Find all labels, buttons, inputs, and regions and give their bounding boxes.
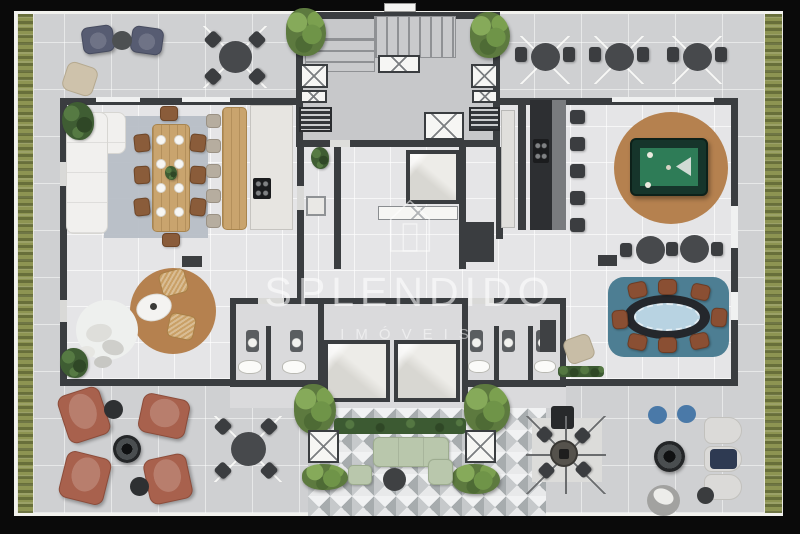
centerpiece-plant [165, 166, 177, 180]
kitchen-island [250, 105, 293, 230]
wall-corridor-right [459, 147, 466, 269]
floor-plan-render: SPLENDIDO IMÓVEIS [0, 0, 800, 534]
planter-bush-core-right [470, 12, 510, 58]
wall-divider-left [297, 147, 304, 305]
toilet-4 [534, 360, 556, 373]
plant-stones [60, 348, 88, 378]
shaft-left-1 [300, 64, 328, 88]
wall-inner-bottom-right [564, 379, 738, 386]
fire-pit [654, 441, 685, 472]
terrace-chair [711, 242, 723, 256]
lounge-chair-terracotta [142, 452, 195, 506]
console-table [182, 256, 202, 267]
bath-door-2 [468, 298, 494, 304]
round-table [231, 432, 266, 466]
plate [156, 159, 166, 169]
plate [156, 183, 166, 193]
window-right-2 [731, 292, 738, 320]
window-right-1 [731, 206, 738, 248]
wall-core-bottom-a [296, 140, 332, 147]
wall-kitchen [518, 104, 526, 230]
vent-grille-left [299, 107, 332, 132]
hedge-patio [334, 418, 466, 434]
stall-divider-4 [494, 326, 499, 382]
pool-ball [666, 165, 671, 170]
round-table [219, 41, 252, 73]
terrace-chair [637, 47, 649, 62]
fire-pit [113, 435, 141, 463]
bar-stool [206, 139, 221, 153]
plate [156, 135, 166, 145]
poker-chair [658, 337, 677, 353]
poker-chair [611, 309, 629, 329]
shower-room-2 [394, 340, 460, 402]
window-tr-1 [612, 97, 714, 102]
poker-table-felt [634, 303, 700, 331]
bar-counter-dark [530, 100, 552, 230]
bath-door-1 [258, 298, 284, 304]
pouf-blue [648, 406, 667, 424]
terrace-chair [515, 47, 527, 62]
plate [174, 207, 184, 217]
bar-counter-wood [222, 107, 247, 230]
terrace-chair [666, 242, 678, 256]
washbasin-2 [290, 330, 303, 352]
side-table-round [130, 477, 149, 496]
bar-stool-dark [570, 191, 585, 205]
patio-bush-left [302, 464, 348, 490]
dining-chair [189, 133, 207, 153]
washbasin-3 [470, 330, 483, 352]
modular-sofa-seat [704, 417, 742, 444]
elevator-shaft-center [378, 55, 420, 73]
side-table-round [697, 487, 714, 504]
bar-counter-top [552, 100, 566, 230]
planter-bush-patio-right [464, 384, 510, 434]
dining-chair [133, 133, 151, 153]
toilet-2 [282, 360, 306, 374]
side-table-round [104, 400, 123, 419]
stall-divider-3 [462, 298, 468, 402]
terrace-chair [589, 47, 601, 62]
bar-stool-dark [570, 164, 585, 178]
cooktop-bar [533, 139, 549, 163]
terrace-chair [620, 243, 632, 257]
window-tl-2 [182, 97, 230, 102]
terrace-chair [667, 47, 679, 62]
poker-chair [710, 307, 728, 327]
shaft-right-1 [471, 64, 498, 88]
shower-room-1 [324, 340, 390, 402]
plate [174, 135, 184, 145]
bar-stool-dark [570, 218, 585, 232]
dining-chair [189, 197, 207, 217]
terrace-chair [563, 47, 575, 62]
round-table [680, 235, 709, 263]
stairs-upper [374, 16, 456, 58]
wicker-chair [166, 311, 198, 341]
elevator-shaft-lower [424, 112, 464, 140]
coffee-table-knob [150, 303, 157, 310]
sofa-sage-ottoman [428, 459, 453, 485]
pouf-sage-cube [348, 465, 372, 485]
bath-wall-left [230, 298, 236, 386]
planter-bush-patio-left [294, 384, 336, 434]
umbrella-pole [559, 449, 569, 459]
bench-small [598, 255, 617, 266]
dining-chair [189, 165, 206, 184]
sofa-navy-cushion [710, 449, 737, 469]
pool-ball [647, 152, 653, 158]
bar-stool [206, 164, 221, 178]
wall-corridor-left [334, 147, 341, 269]
wall-inner-bottom-left [60, 379, 232, 386]
stall-divider-5 [528, 326, 533, 382]
door-divider-left [297, 186, 304, 210]
bar-stool [206, 189, 221, 203]
dining-chair-head [160, 106, 178, 121]
armchair-navy [129, 25, 164, 56]
service-sink [306, 196, 326, 216]
kitchen-counter-light [501, 110, 515, 228]
washbasin-4 [502, 330, 515, 352]
column-x-right [465, 430, 496, 463]
lobby-room [406, 150, 460, 204]
cooktop-island [253, 178, 271, 199]
shaft-right-2 [472, 90, 498, 103]
terrace-chair [715, 47, 727, 62]
plate [174, 183, 184, 193]
column-x-left [308, 430, 339, 463]
stall-divider-1 [266, 326, 271, 382]
poker-chair [658, 279, 677, 295]
duct-top [384, 3, 416, 12]
bar-stool-dark [570, 137, 585, 151]
dining-chair-foot [162, 233, 180, 247]
plant-corridor [311, 147, 329, 169]
door-core [330, 140, 352, 147]
bar-stool [206, 214, 221, 228]
round-table [605, 43, 634, 71]
vent-grille-right [469, 107, 500, 131]
hedge-poker [558, 366, 604, 377]
dining-chair [133, 197, 151, 217]
shaft-left-2 [300, 90, 327, 103]
patio-coffee-table [383, 468, 406, 491]
round-table [683, 43, 712, 71]
planter-bush-core-left [286, 8, 326, 56]
armchair-navy [80, 24, 115, 55]
plant-living [62, 102, 94, 140]
pouf-blue [677, 405, 696, 423]
bar-stool [206, 114, 221, 128]
window-tl-1 [96, 97, 140, 102]
toilet-3 [468, 360, 490, 373]
pool-ball [645, 182, 651, 188]
dining-chair [133, 165, 150, 184]
service-duct [378, 206, 458, 220]
kitchen-counter-dark [466, 222, 494, 262]
plate [156, 207, 166, 217]
toilet-1 [238, 360, 262, 374]
side-table-poker [540, 320, 556, 352]
side-table-top [112, 31, 132, 50]
patio-bush-right [452, 464, 500, 494]
round-table [636, 236, 665, 264]
grass-strip-left [17, 14, 34, 513]
grass-strip-right [764, 14, 783, 513]
wall-core-bottom-b [350, 140, 500, 147]
round-table [531, 43, 560, 71]
door-left-2 [60, 300, 67, 322]
washbasin-1 [246, 330, 259, 352]
bar-stool-dark [570, 110, 585, 124]
